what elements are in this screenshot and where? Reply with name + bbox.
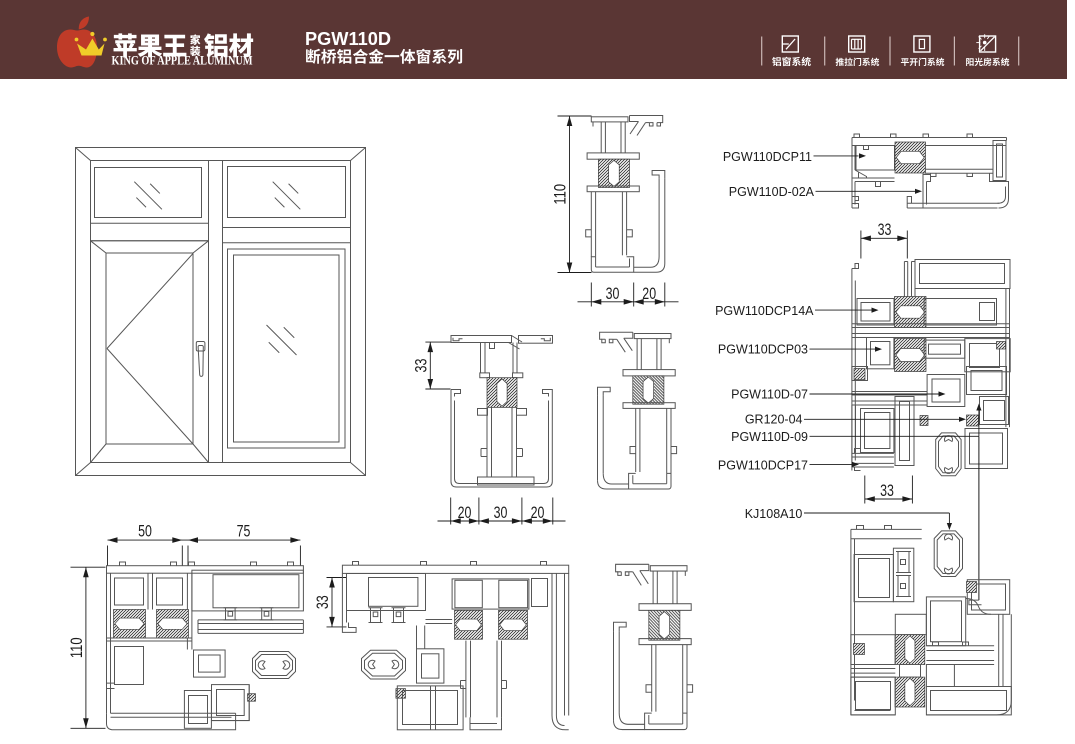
svg-text:33: 33 bbox=[878, 221, 892, 239]
svg-text:20: 20 bbox=[458, 504, 472, 522]
svg-text:20: 20 bbox=[642, 285, 656, 303]
svg-text:20: 20 bbox=[531, 504, 545, 522]
svg-text:50: 50 bbox=[138, 523, 152, 541]
svg-text:110: 110 bbox=[68, 637, 86, 658]
svg-text:33: 33 bbox=[880, 482, 894, 500]
svg-text:PGW110DCP03: PGW110DCP03 bbox=[718, 343, 808, 357]
svg-text:30: 30 bbox=[494, 504, 508, 522]
svg-text:PGW110D-09: PGW110D-09 bbox=[731, 430, 808, 444]
svg-text:75: 75 bbox=[237, 523, 251, 541]
svg-text:KJ108A10: KJ108A10 bbox=[745, 507, 803, 521]
svg-text:PGW110D-02A: PGW110D-02A bbox=[729, 185, 815, 199]
svg-text:PGW110D-07: PGW110D-07 bbox=[731, 388, 808, 402]
svg-text:PGW110DCP14A: PGW110DCP14A bbox=[715, 304, 814, 318]
svg-text:PGW110DCP11: PGW110DCP11 bbox=[723, 150, 812, 164]
svg-text:GR120-04: GR120-04 bbox=[745, 413, 803, 427]
svg-text:110: 110 bbox=[552, 184, 570, 205]
svg-text:33: 33 bbox=[412, 359, 430, 373]
svg-text:33: 33 bbox=[314, 595, 332, 609]
svg-text:30: 30 bbox=[606, 285, 620, 303]
svg-text:PGW110DCP17: PGW110DCP17 bbox=[718, 459, 808, 473]
